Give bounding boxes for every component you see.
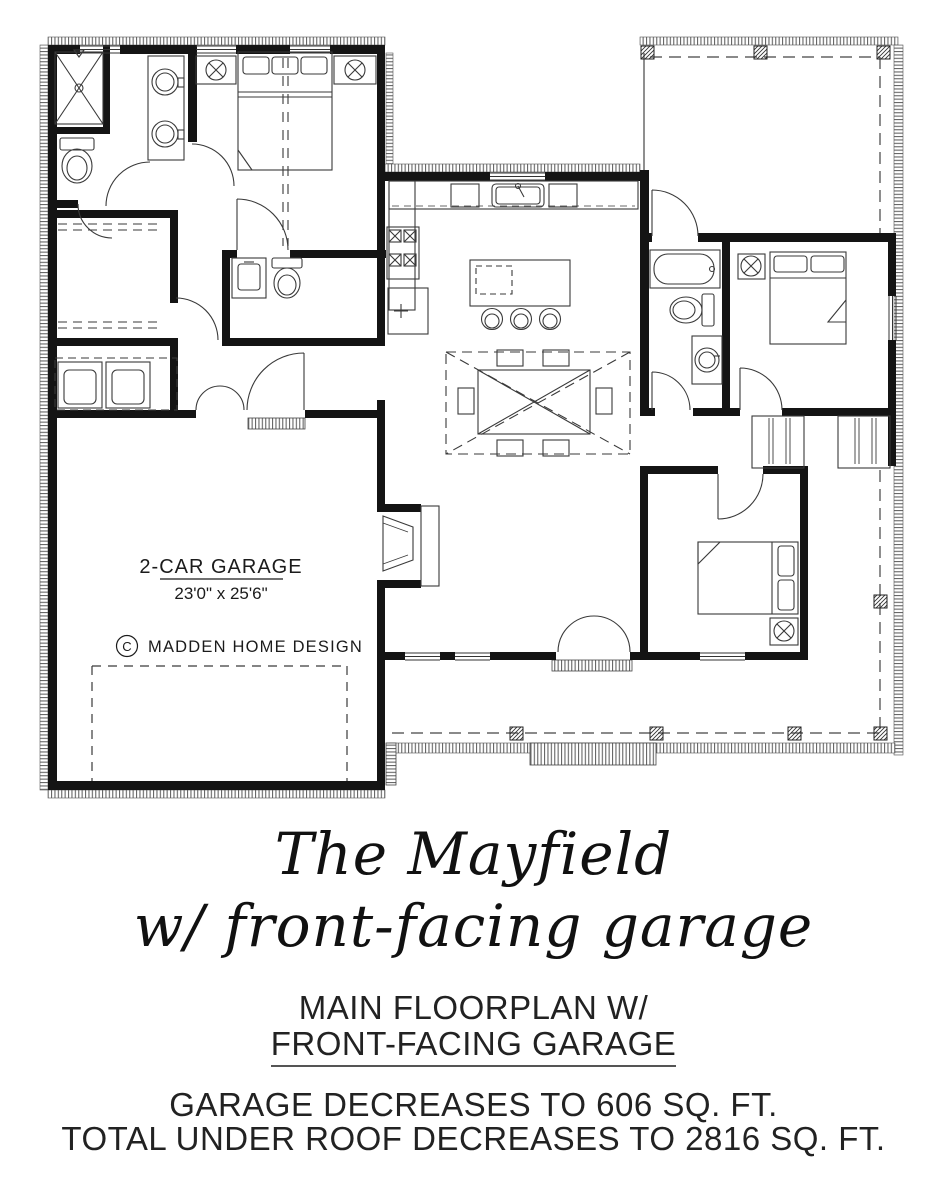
column-icon [510,727,523,740]
plan-name-line1: The Mayfield [0,818,947,890]
shower [55,50,103,124]
kitchen-island [470,260,570,306]
bar-stool [511,309,532,330]
garage-dimensions: 23'0" x 25'6" [174,584,267,603]
garage-label: 2-CAR GARAGE [139,556,302,578]
subtitle-line2: FRONT-FACING GARAGE [271,1026,677,1067]
bed [770,252,846,344]
porch-columns [510,46,890,740]
table-pattern [478,370,590,434]
fireplace [383,506,439,586]
toilet [60,138,94,183]
vanity-sink [692,336,722,384]
subtitle-line1: MAIN FLOORPLAN W/ [0,990,947,1026]
door-arc [78,204,112,238]
copyright-mark: C MADDEN HOME DESIGN [117,636,364,657]
window-icon [405,653,440,660]
double-vanity [148,56,184,160]
porch-side-steps [386,743,396,785]
column-icon [874,595,887,608]
closet [752,416,804,468]
door-arc [237,199,288,250]
door-arc [192,144,234,186]
column-icon [641,46,654,59]
dining-area [446,350,630,456]
vanity-sink [232,258,266,298]
window-icon [490,173,545,180]
bed [698,542,798,614]
door-arc [652,372,690,410]
bathtub [650,250,720,288]
counter-appliance [549,184,577,207]
copyright-text: MADDEN HOME DESIGN [148,638,363,656]
window-icon [196,46,236,53]
double-door-arc [196,386,244,410]
garage-door-outline [92,666,347,781]
window-icon [455,653,490,660]
counter-appliance [451,184,479,207]
nightstand [738,254,765,279]
column-icon [874,727,887,740]
counter-left [389,181,415,310]
door-arc [106,162,150,206]
plan-name-line2: w/ front-facing garage [0,890,947,962]
plan-notes: GARAGE DECREASES TO 606 SQ. FT. TOTAL UN… [0,1088,947,1156]
copyright-symbol: C [122,639,131,654]
counter-outline [55,358,177,410]
porch-steps [530,743,656,765]
refrigerator [388,288,428,334]
floor-plan-page: 2-CAR GARAGE 23'0" x 25'6" C MADDEN HOME… [0,0,947,1200]
steps [248,418,656,785]
walls [48,45,896,790]
bar-stool [482,309,503,330]
column-icon [650,727,663,740]
toilet [272,258,302,298]
door-arc [652,190,698,236]
plan-subtitle: MAIN FLOORPLAN W/ FRONT-FACING GARAGE [0,990,947,1067]
nightstand [334,56,376,84]
chair [596,388,612,414]
door-arc [176,298,218,340]
laundry [55,358,177,410]
bar-stool [540,309,561,330]
ceiling-line [283,58,288,246]
stove [387,227,419,279]
column-icon [788,727,801,740]
chair [458,388,474,414]
garage-door-arc [247,353,304,410]
note-total-sqft: TOTAL UNDER ROOF DECREASES TO 2816 SQ. F… [0,1122,947,1156]
garage-entry-steps [248,418,305,429]
closet-rods [58,224,162,328]
master-bed [238,52,332,170]
plan-name-title: The Mayfield w/ front-facing garage [0,818,947,962]
kitchen [387,181,638,334]
floor-plan-svg: 2-CAR GARAGE 23'0" x 25'6" C MADDEN HOME… [0,0,947,810]
counter [389,181,638,209]
garage-room: 2-CAR GARAGE 23'0" x 25'6" C MADDEN HOME… [92,556,363,781]
bathroom-2 [650,250,722,384]
hall-closets [752,416,890,468]
bedroom-2 [738,252,846,344]
guest-bath [232,258,302,298]
column-icon [754,46,767,59]
dryer [106,362,150,408]
master-suite [55,50,376,328]
kitchen-sink [492,184,544,208]
nightstand [770,618,798,645]
note-garage-sqft: GARAGE DECREASES TO 606 SQ. FT. [0,1088,947,1122]
floor-plan-drawing: 2-CAR GARAGE 23'0" x 25'6" C MADDEN HOME… [0,0,947,810]
door-arc [718,474,763,519]
door-arc [740,368,782,410]
closet [838,416,890,468]
front-door-steps [552,660,632,671]
column-icon [877,46,890,59]
toilet [670,294,714,326]
window-icon [700,653,745,660]
front-door-arcs [558,616,630,652]
washer [58,362,102,408]
nightstand [196,56,236,84]
bedroom-3 [698,542,798,645]
